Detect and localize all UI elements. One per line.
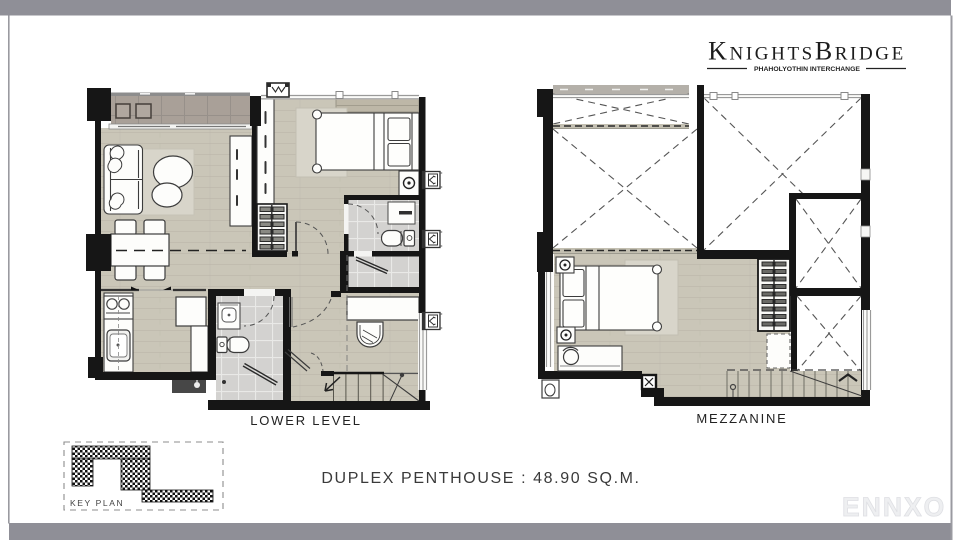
svg-text:DUPLEX PENTHOUSE : 48.90 SQ.M.: DUPLEX PENTHOUSE : 48.90 SQ.M.	[321, 470, 640, 487]
svg-text:LOWER LEVEL: LOWER LEVEL	[250, 413, 362, 428]
svg-text:MEZZANINE: MEZZANINE	[696, 411, 787, 426]
svg-text:ENNXO: ENNXO	[842, 492, 946, 522]
svg-text:KEY PLAN: KEY PLAN	[70, 498, 124, 508]
svg-text:PHAHOLYOTHIN INTERCHANGE: PHAHOLYOTHIN INTERCHANGE	[754, 66, 861, 73]
